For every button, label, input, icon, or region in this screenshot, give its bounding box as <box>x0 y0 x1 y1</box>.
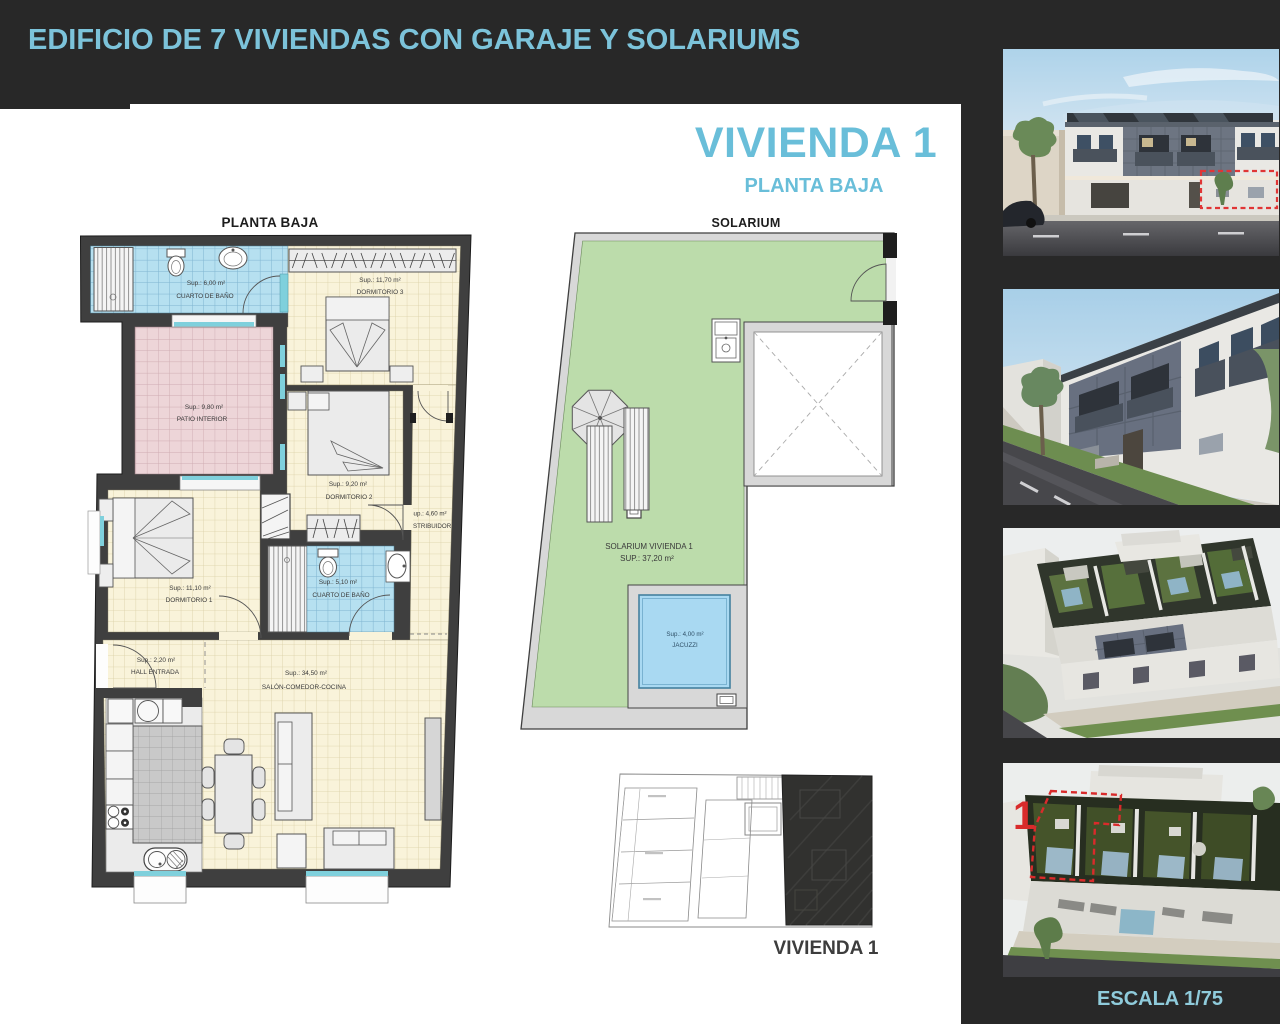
svg-text:DORMITORIO 1: DORMITORIO 1 <box>166 597 213 604</box>
svg-text:JACUZZI: JACUZZI <box>672 642 698 649</box>
svg-text:PATIO INTERIOR: PATIO INTERIOR <box>177 416 228 423</box>
svg-text:Sup.: 2,20 m²: Sup.: 2,20 m² <box>137 657 175 664</box>
svg-text:SUP.: 37,20 m²: SUP.: 37,20 m² <box>620 554 674 563</box>
svg-text:Sup.: 11,10 m²: Sup.: 11,10 m² <box>169 585 210 592</box>
svg-text:Sup.: 11,70 m²: Sup.: 11,70 m² <box>359 277 400 284</box>
svg-text:1: 1 <box>1013 794 1035 838</box>
svg-text:Sup.: 5,10 m²: Sup.: 5,10 m² <box>319 579 357 586</box>
svg-text:Sup.: 9,20 m²: Sup.: 9,20 m² <box>329 481 367 488</box>
svg-text:HALL ENTRADA: HALL ENTRADA <box>131 669 180 676</box>
svg-text:DORMITORIO 2: DORMITORIO 2 <box>326 494 373 501</box>
svg-text:Sup.: 4,00 m²: Sup.: 4,00 m² <box>666 631 703 638</box>
svg-text:Sup.: 34,50 m²: Sup.: 34,50 m² <box>285 670 327 677</box>
svg-text:SOLARIUM VIVIENDA 1: SOLARIUM VIVIENDA 1 <box>605 542 693 551</box>
svg-text:DISTRIBUIDOR: DISTRIBUIDOR <box>407 523 452 530</box>
svg-text:Sup.: 4,60 m²: Sup.: 4,60 m² <box>409 511 446 518</box>
svg-text:Sup.: 9,80 m²: Sup.: 9,80 m² <box>185 404 223 411</box>
svg-text:Sup.: 6,00 m²: Sup.: 6,00 m² <box>187 280 225 287</box>
svg-text:DORMITORIO 3: DORMITORIO 3 <box>357 289 404 296</box>
